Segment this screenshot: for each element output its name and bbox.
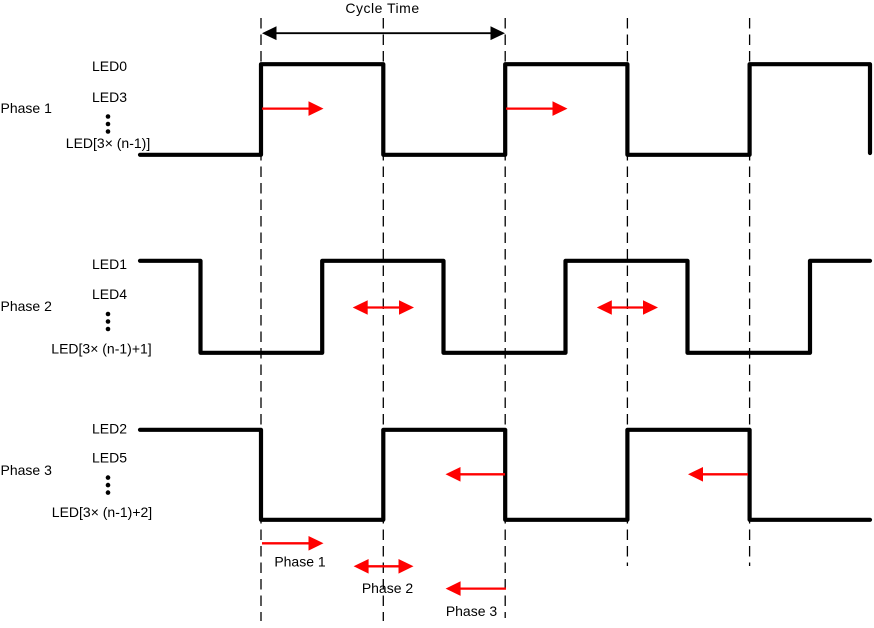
svg-text:LED1: LED1 bbox=[92, 256, 127, 272]
svg-text:LED[3× (n-1)+2]: LED[3× (n-1)+2] bbox=[52, 504, 152, 520]
svg-text:Phase 3: Phase 3 bbox=[1, 462, 53, 478]
svg-text:LED0: LED0 bbox=[92, 58, 127, 74]
svg-text:Phase 2: Phase 2 bbox=[1, 298, 53, 314]
svg-text:LED[3× (n-1)+1]: LED[3× (n-1)+1] bbox=[51, 341, 151, 357]
svg-text:Phase 2: Phase 2 bbox=[362, 580, 414, 596]
svg-text:Phase 3: Phase 3 bbox=[446, 603, 498, 619]
svg-text:LED3: LED3 bbox=[92, 89, 127, 105]
svg-text:LED4: LED4 bbox=[92, 286, 127, 302]
svg-text:LED[3× (n-1)]: LED[3× (n-1)] bbox=[66, 135, 150, 151]
svg-text:Phase 1: Phase 1 bbox=[1, 100, 53, 116]
svg-text:LED2: LED2 bbox=[92, 420, 127, 436]
svg-text:Cycle Time: Cycle Time bbox=[345, 0, 419, 16]
svg-text:LED5: LED5 bbox=[92, 449, 127, 465]
svg-text:Phase 1: Phase 1 bbox=[274, 553, 326, 569]
